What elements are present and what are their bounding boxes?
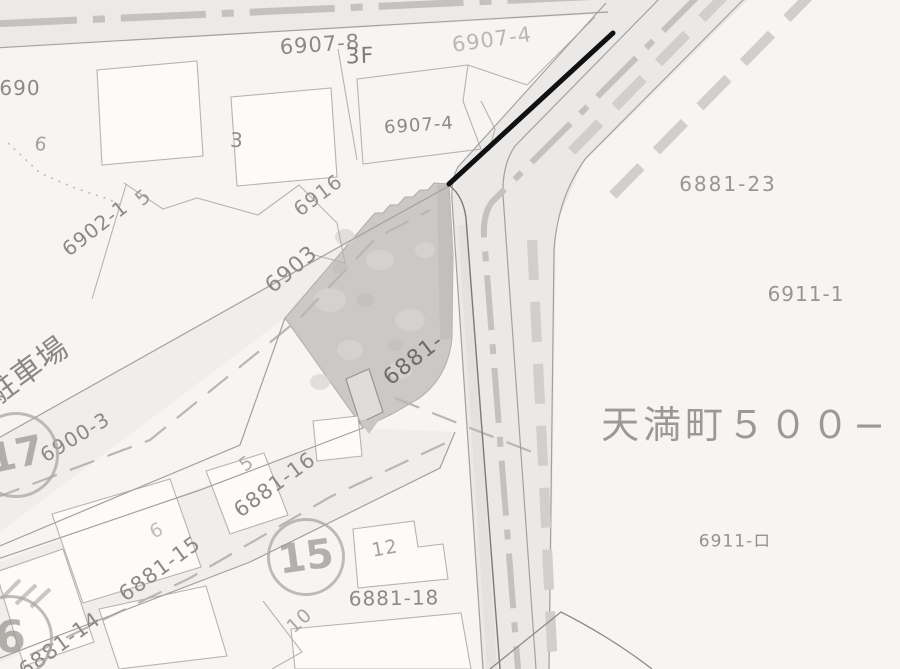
district-label-tenmancho: 天満町５００−: [601, 406, 889, 444]
building-label-3: 3: [230, 130, 245, 151]
parcel-label-6881-18: 6881-18: [349, 587, 440, 609]
survey-point-17-number: 17: [0, 430, 47, 481]
survey-point-6-number: 6: [0, 615, 27, 662]
building-label-12: 12: [370, 537, 399, 560]
parcel-label-6911-1: 6911-1: [768, 284, 845, 304]
parcel-label-6907-4-lower: 6907-4: [384, 115, 455, 138]
survey-point-15-number: 15: [276, 533, 337, 580]
parcel-label-690-partial: 690: [0, 78, 41, 98]
parcel-label-6881-23: 6881-23: [679, 174, 777, 194]
cadastral-map: 6907-8 3F 6907-4 6907-4 690 6 5 6902-1 3…: [0, 0, 900, 669]
parcel-label-6911-ro: 6911-ロ: [699, 534, 771, 551]
building-label-6-top: 6: [33, 135, 49, 156]
building-label-3f: 3F: [345, 46, 374, 69]
survey-point-circle-15: 15: [267, 518, 345, 596]
map-linework: [0, 0, 900, 669]
